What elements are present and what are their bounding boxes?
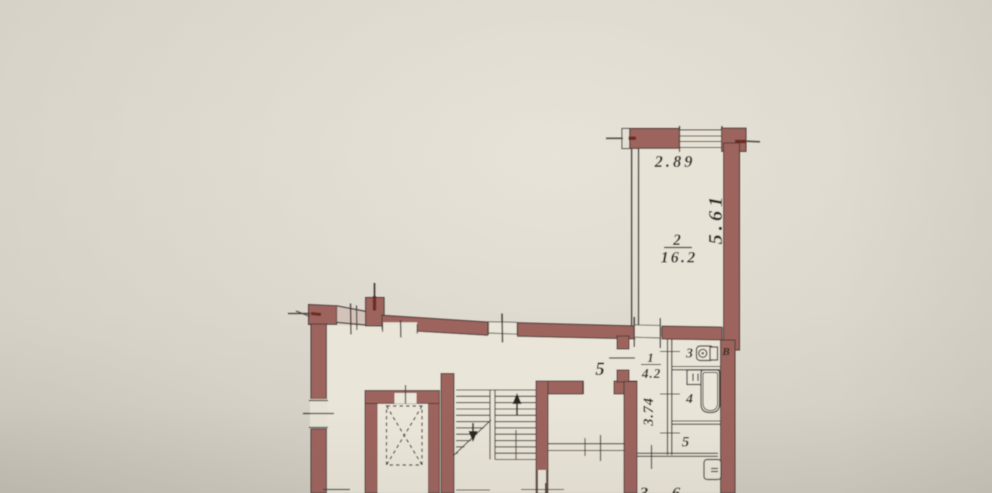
svg-text:3: 3 <box>685 347 693 362</box>
svg-text:5: 5 <box>595 360 604 380</box>
svg-text:4: 4 <box>685 392 693 407</box>
svg-text:6: 6 <box>672 484 681 493</box>
svg-text:5.61: 5.61 <box>705 193 727 245</box>
svg-text:2: 2 <box>672 232 681 249</box>
svg-text:В: В <box>721 346 729 358</box>
svg-text:2.89: 2.89 <box>654 152 696 171</box>
svg-text:5: 5 <box>682 435 690 451</box>
svg-text:3.74: 3.74 <box>641 397 657 427</box>
svg-text:4.2: 4.2 <box>641 366 661 381</box>
svg-text:З: З <box>639 484 649 493</box>
svg-text:16.2: 16.2 <box>661 250 698 267</box>
svg-text:1: 1 <box>647 350 654 365</box>
